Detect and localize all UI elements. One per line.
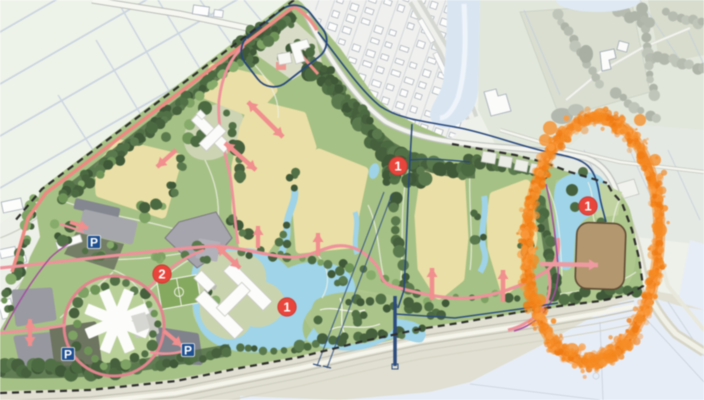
svg-text:2: 2 xyxy=(158,267,165,282)
svg-text:1: 1 xyxy=(584,199,591,214)
svg-text:P: P xyxy=(64,347,72,361)
svg-text:P: P xyxy=(184,343,192,357)
svg-text:P: P xyxy=(90,235,98,249)
svg-text:1: 1 xyxy=(283,300,290,315)
svg-text:1: 1 xyxy=(394,159,401,174)
